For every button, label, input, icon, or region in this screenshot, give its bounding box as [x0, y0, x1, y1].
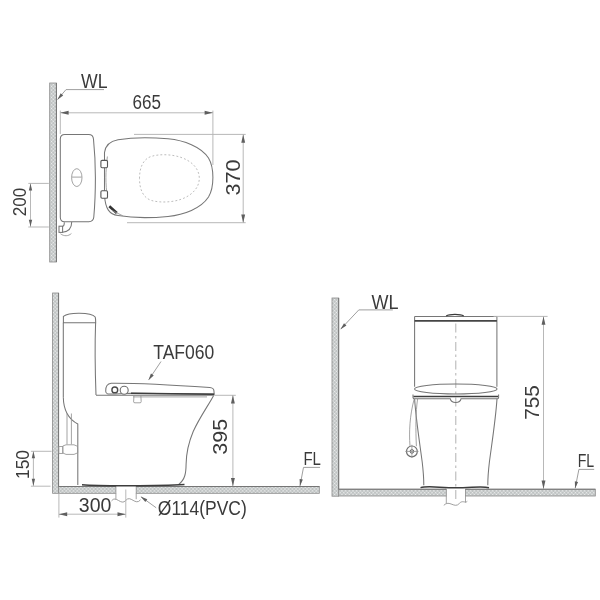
svg-text:755: 755	[520, 385, 543, 420]
svg-text:665: 665	[133, 91, 162, 113]
svg-text:TAF060: TAF060	[153, 341, 214, 363]
svg-text:300: 300	[79, 494, 112, 516]
svg-text:200: 200	[9, 188, 30, 217]
svg-text:395: 395	[208, 419, 231, 455]
svg-text:FL: FL	[303, 448, 321, 469]
svg-text:FL: FL	[578, 450, 595, 471]
svg-text:WL: WL	[81, 70, 108, 92]
svg-text:150: 150	[12, 450, 33, 479]
svg-text:Ø114(PVC): Ø114(PVC)	[158, 497, 247, 519]
svg-text:370: 370	[222, 159, 244, 195]
